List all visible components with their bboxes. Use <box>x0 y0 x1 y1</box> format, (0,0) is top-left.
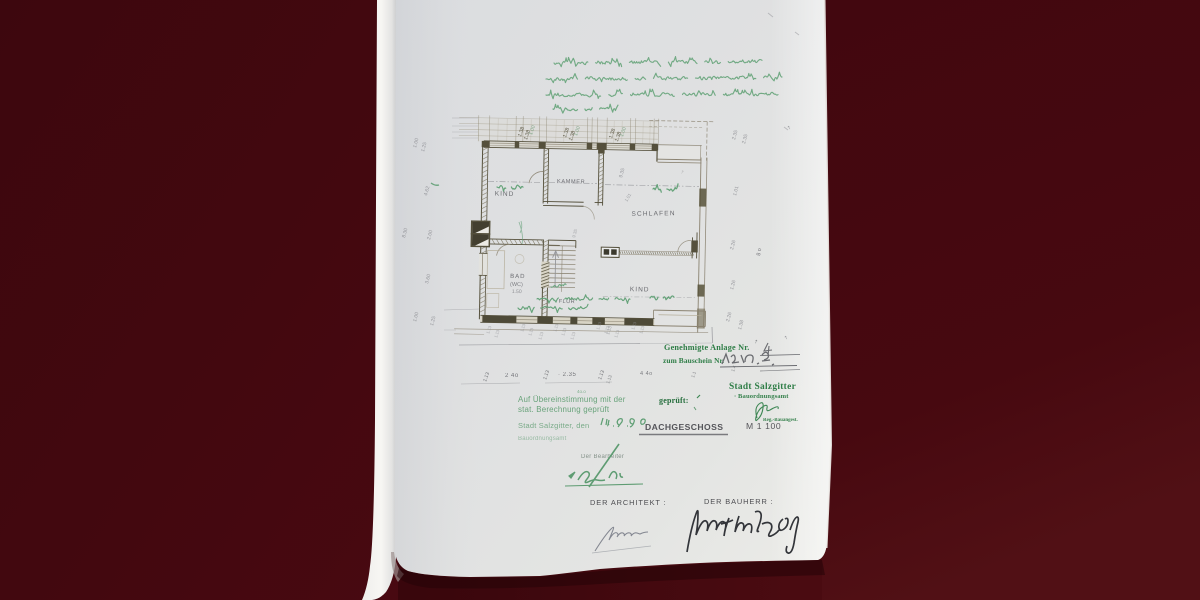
svg-text:· 2.35: · 2.35 <box>558 372 577 378</box>
svg-text:Genehmigte Anlage Nr.: Genehmigte Anlage Nr. <box>664 343 750 352</box>
svg-text:DER ARCHITEKT :: DER ARCHITEKT : <box>590 498 667 507</box>
svg-text:Auf Übereinstimmung mit der: Auf Übereinstimmung mit der <box>518 395 626 404</box>
svg-text:Stadt Salzgitter, den: Stadt Salzgitter, den <box>518 421 589 430</box>
svg-text:BAD: BAD <box>510 274 525 280</box>
svg-text:zum Bauschein Nr.: zum Bauschein Nr. <box>663 356 724 365</box>
svg-text:KIND: KIND <box>495 191 515 198</box>
svg-text:KAMMER: KAMMER <box>557 179 585 186</box>
svg-text:KIND: KIND <box>630 286 650 293</box>
svg-text:M 1 100: M 1 100 <box>746 421 781 431</box>
svg-text:Der Bearbeiter: Der Bearbeiter <box>581 454 624 460</box>
svg-text:Stadt Salzgitter: Stadt Salzgitter <box>729 382 796 392</box>
svg-text:Bauordnungsamt: Bauordnungsamt <box>518 436 567 442</box>
svg-text:DER BAUHERR :: DER BAUHERR : <box>704 497 774 506</box>
svg-text:stat. Berechnung geprüft: stat. Berechnung geprüft <box>518 405 610 414</box>
svg-text:2 4o: 2 4o <box>505 373 519 379</box>
svg-text:4o.o: 4o.o <box>577 389 586 394</box>
svg-text:4 4o: 4 4o <box>640 371 653 377</box>
svg-text:1.50: 1.50 <box>512 289 522 295</box>
svg-text:· Bauordnungsamt: · Bauordnungsamt <box>734 393 789 400</box>
svg-text:geprüft:: geprüft: <box>659 396 689 405</box>
svg-text:DACHGESCHOSS: DACHGESCHOSS <box>645 422 723 432</box>
svg-text:SCHLAFEN: SCHLAFEN <box>631 210 675 218</box>
svg-text:(WC): (WC) <box>510 282 523 288</box>
